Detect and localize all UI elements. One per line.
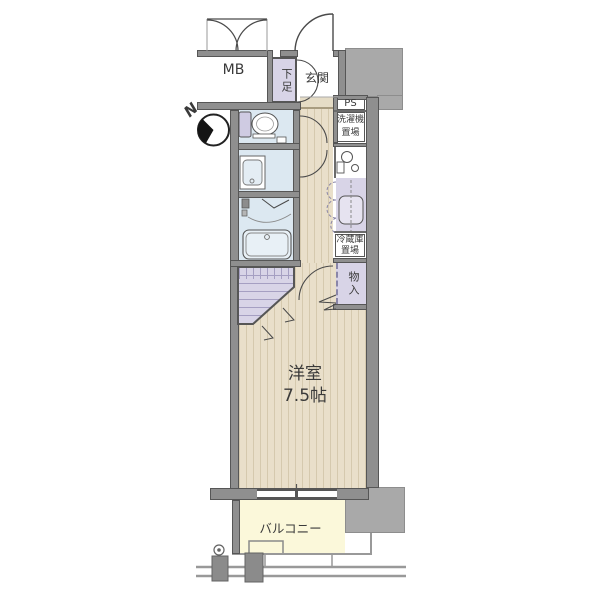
window-mullion <box>295 491 298 497</box>
wall-mb-shoe-divider <box>267 50 273 110</box>
balcony-bottom-edge <box>232 553 372 555</box>
hallway-floor <box>300 108 333 263</box>
bathroom-floor <box>239 198 293 260</box>
wall-bottom-right-pier <box>336 488 369 500</box>
fridge-space-label: 冷蔵庫 置場 <box>334 235 366 258</box>
pipe-space-label: PS <box>336 97 365 110</box>
wall-bath-bottom <box>230 260 301 267</box>
wall-entrance-top-left <box>280 50 298 57</box>
washer-space-line1: 洗濯機 <box>337 115 364 125</box>
washer-space-label: 洗濯機 置場 <box>335 114 366 139</box>
compass-north-label: N <box>178 97 205 124</box>
wall-right <box>366 97 379 488</box>
mb-double-door <box>207 19 267 51</box>
western-room-name: 洋室 <box>288 364 322 384</box>
mb-label: MB <box>206 62 261 78</box>
wall-toilet-bottom <box>238 143 300 150</box>
fridge-space-line2: 置場 <box>341 246 359 256</box>
wall-washroom-bottom <box>238 191 300 198</box>
wall-wet-right <box>293 110 300 267</box>
western-room-label: 洋室 7.5帖 <box>260 363 350 407</box>
building-structure-top-right <box>345 48 403 97</box>
compass-icon <box>198 115 229 146</box>
wall-storage-bottom <box>333 304 367 310</box>
closet-shelf-hatch <box>239 268 293 279</box>
wall-washer-kitchen-divider <box>333 143 367 147</box>
balcony-right-edge <box>370 533 372 555</box>
toilet-room-floor <box>238 110 293 143</box>
floor-plan: MB 下足 玄関 PS 洗濯機 置場 冷蔵庫 置場 物入 洋室 7.5帖 バルコ… <box>0 0 600 600</box>
western-room-size: 7.5帖 <box>283 386 327 406</box>
wall-mb-top <box>197 50 270 57</box>
wall-kitchen-bottom-line <box>334 231 366 233</box>
wall-storage-top <box>333 258 367 263</box>
fridge-space-line1: 冷蔵庫 <box>336 235 363 245</box>
washroom-floor <box>238 150 293 191</box>
building-structure-top-right-step <box>377 95 403 110</box>
entrance-label: 玄関 <box>294 69 340 86</box>
kitchen-counter-lower <box>336 178 366 232</box>
wall-left <box>230 110 239 500</box>
wall-bottom-left-pier <box>210 488 258 500</box>
wall-ps-washer-divider <box>334 110 366 112</box>
wall-kitchen-edge <box>334 147 336 178</box>
storage-label: 物入 <box>341 268 361 300</box>
kitchen-counter-top <box>336 147 366 178</box>
wall-under-mb <box>197 102 301 110</box>
shoe-cabinet-label: 下足 <box>274 63 294 99</box>
wall-balcony-left <box>232 500 240 554</box>
washer-space-line2: 置場 <box>341 128 359 138</box>
balcony-label: バルコニー <box>248 518 333 537</box>
entrance-door <box>295 14 333 51</box>
